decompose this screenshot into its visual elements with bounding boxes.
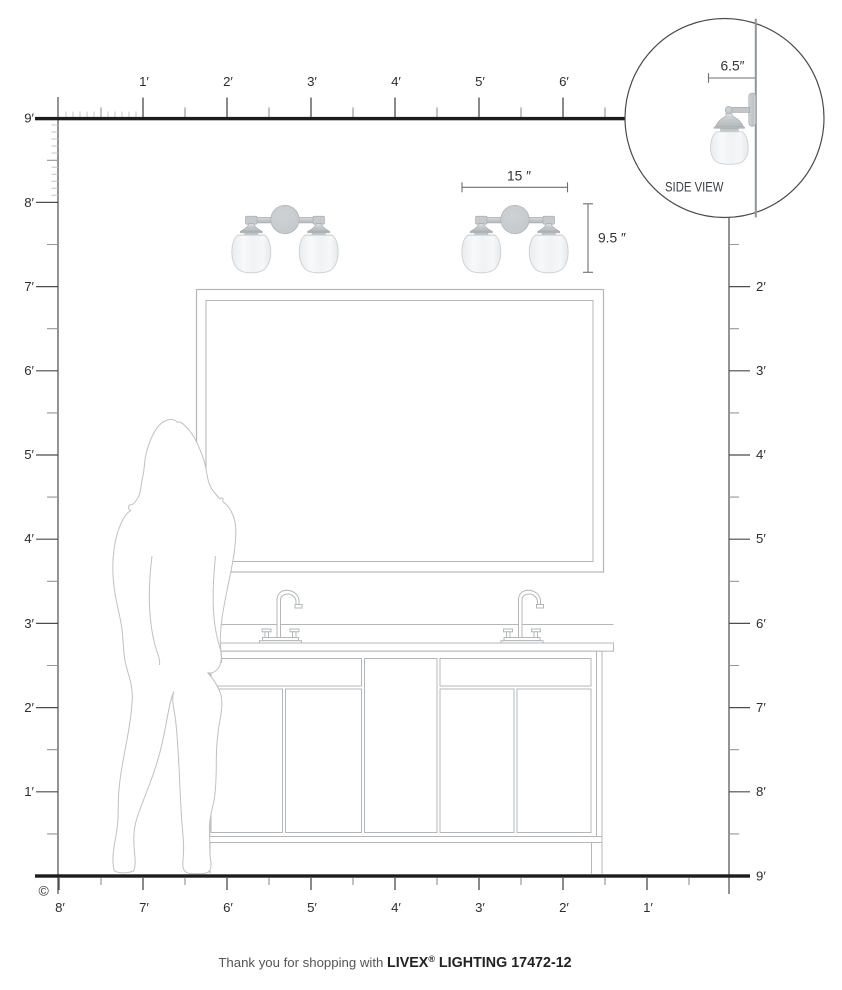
svg-text:2′: 2′ bbox=[756, 279, 766, 294]
svg-text:3′: 3′ bbox=[756, 363, 766, 378]
svg-text:5′: 5′ bbox=[475, 74, 485, 89]
svg-text:3′: 3′ bbox=[307, 74, 317, 89]
svg-text:9′: 9′ bbox=[756, 869, 766, 884]
svg-text:6′: 6′ bbox=[756, 616, 766, 631]
svg-text:2′: 2′ bbox=[559, 900, 569, 915]
svg-text:7′: 7′ bbox=[756, 700, 766, 715]
svg-text:3′: 3′ bbox=[24, 616, 34, 631]
svg-text:Thank you for shopping with LI: Thank you for shopping with LIVEX® LIGHT… bbox=[218, 954, 571, 971]
svg-text:9.5 ″: 9.5 ″ bbox=[598, 231, 626, 246]
svg-text:15 ″: 15 ″ bbox=[507, 169, 531, 184]
svg-text:9′: 9′ bbox=[24, 111, 34, 126]
svg-text:1′: 1′ bbox=[643, 900, 653, 915]
svg-text:4′: 4′ bbox=[24, 531, 34, 546]
svg-text:1′: 1′ bbox=[139, 74, 149, 89]
svg-text:7′: 7′ bbox=[24, 279, 34, 294]
svg-text:5′: 5′ bbox=[24, 447, 34, 462]
svg-text:4′: 4′ bbox=[756, 447, 766, 462]
svg-text:8′: 8′ bbox=[756, 784, 766, 799]
svg-text:4′: 4′ bbox=[391, 74, 401, 89]
svg-text:2′: 2′ bbox=[223, 74, 233, 89]
svg-text:6′: 6′ bbox=[24, 363, 34, 378]
svg-text:6′: 6′ bbox=[223, 900, 233, 915]
svg-text:6′: 6′ bbox=[559, 74, 569, 89]
svg-text:©: © bbox=[39, 883, 50, 899]
svg-text:7′: 7′ bbox=[139, 900, 149, 915]
svg-text:1′: 1′ bbox=[24, 784, 34, 799]
svg-text:3′: 3′ bbox=[475, 900, 485, 915]
svg-text:6.5″: 6.5″ bbox=[720, 59, 744, 74]
svg-text:8′: 8′ bbox=[24, 195, 34, 210]
svg-text:8′: 8′ bbox=[55, 900, 65, 915]
svg-text:5′: 5′ bbox=[756, 531, 766, 546]
svg-text:2′: 2′ bbox=[24, 700, 34, 715]
svg-text:SIDE VIEW: SIDE VIEW bbox=[665, 180, 724, 195]
svg-text:5′: 5′ bbox=[307, 900, 317, 915]
svg-text:4′: 4′ bbox=[391, 900, 401, 915]
